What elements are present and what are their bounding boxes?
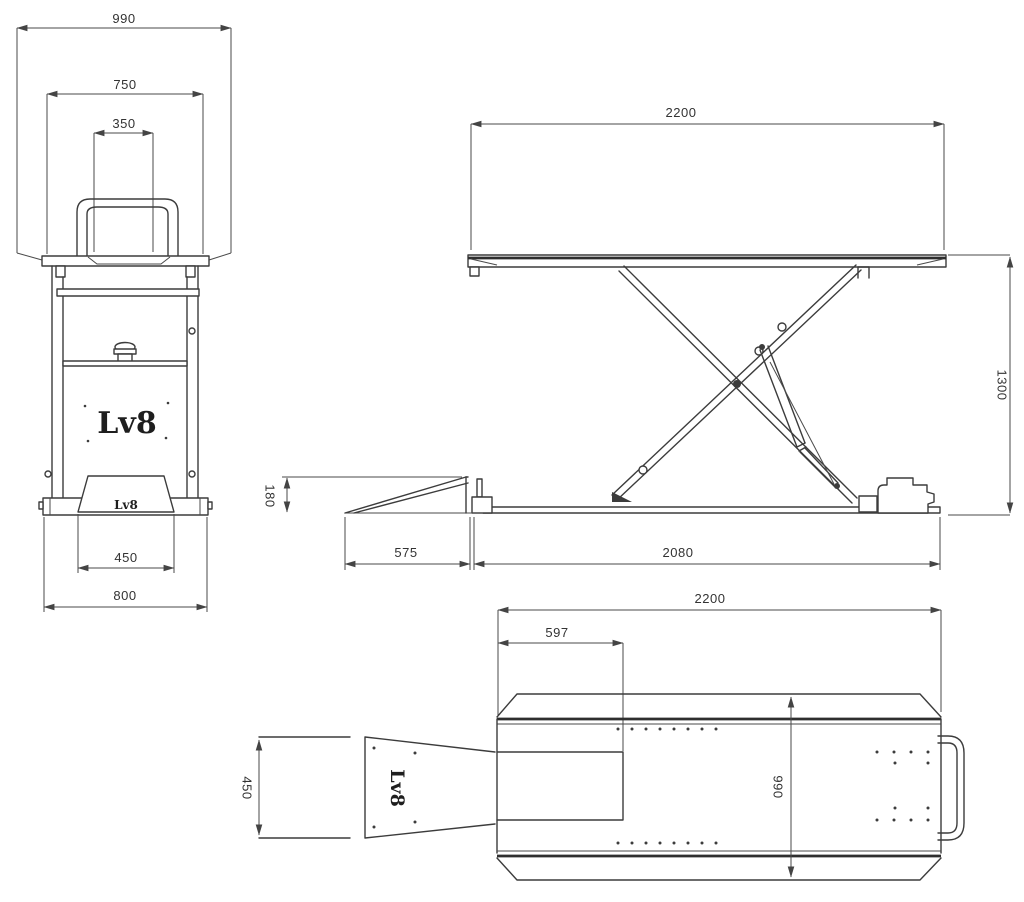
front-base: Lv8: [39, 476, 212, 515]
dim-side-ramp-height: 180: [263, 484, 278, 507]
dim-top-platform-length: 2200: [695, 591, 726, 606]
dim-side-lift-height: 1300: [995, 370, 1010, 401]
top-view: 2200 597 990: [240, 591, 964, 880]
dim-side-ramp-length: 575: [394, 545, 417, 560]
dim-front-handle-width: 350: [112, 116, 135, 131]
front-view: 990 750 350: [17, 11, 231, 612]
dim-top-ramp-width: 450: [240, 776, 255, 799]
top-platform: [497, 694, 941, 880]
dim-side-platform-length: 2200: [666, 105, 697, 120]
front-platform: [42, 256, 209, 266]
center-pivot: [733, 380, 741, 388]
dim-top-platform-width: 990: [771, 775, 786, 798]
scissor-lift-drawing: 990 750 350: [0, 0, 1024, 902]
side-base: [472, 478, 940, 513]
brand-logo-front-ramp: Lv8: [114, 498, 138, 512]
dim-front-overall-width: 990: [112, 11, 135, 26]
side-platform: [468, 255, 946, 278]
front-body: Lv8: [45, 266, 199, 498]
front-handle-bracket: [77, 199, 178, 261]
brand-logo-top-ramp: Lv8: [386, 769, 408, 807]
rear-handle: [938, 736, 964, 840]
dim-side-base-length: 2080: [663, 545, 694, 560]
top-ramp: Lv8: [259, 737, 495, 838]
side-ramp: [345, 477, 483, 513]
dim-front-platform-width: 750: [113, 77, 136, 92]
dim-front-ramp-width: 450: [114, 550, 137, 565]
brand-logo-front-body: Lv8: [97, 406, 156, 441]
hydraulic-cylinder: [759, 344, 840, 489]
power-unit: [878, 478, 934, 513]
dim-front-base-width: 800: [113, 588, 136, 603]
wheel-cutout: [497, 752, 623, 820]
dim-top-cutout-offset: 597: [545, 625, 568, 640]
scissor-mechanism: [612, 265, 861, 512]
technical-drawing-page: 990 750 350: [0, 0, 1024, 902]
side-view: 2200 1300: [263, 105, 1010, 570]
